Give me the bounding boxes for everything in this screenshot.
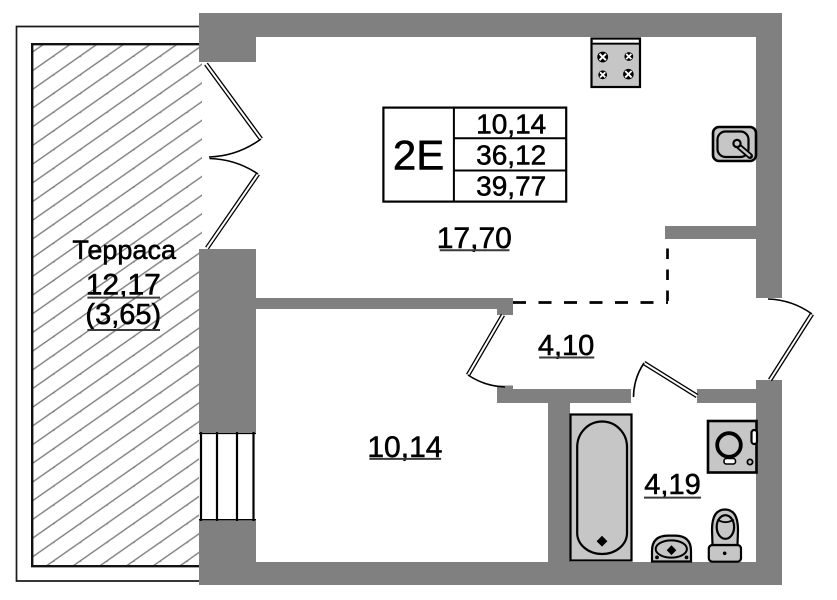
svg-text:Терраса: Терраса <box>72 235 177 265</box>
svg-text:12,17: 12,17 <box>86 269 161 302</box>
svg-text:10,14: 10,14 <box>476 109 546 140</box>
svg-text:2E: 2E <box>393 131 444 178</box>
svg-text:39,77: 39,77 <box>476 171 546 202</box>
svg-text:36,12: 36,12 <box>476 140 546 171</box>
svg-text:(3,65): (3,65) <box>85 299 161 331</box>
svg-text:4,19: 4,19 <box>644 469 700 501</box>
